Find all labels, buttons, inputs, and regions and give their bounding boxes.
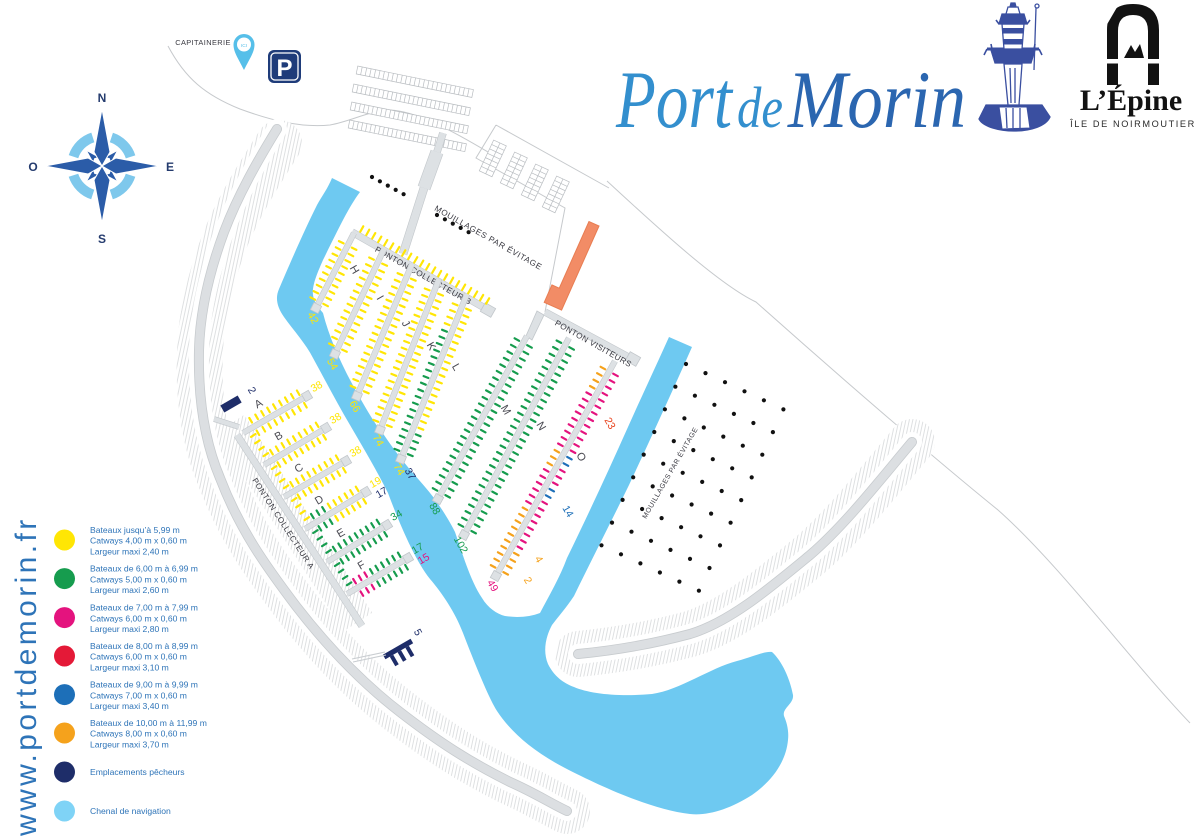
svg-text:Bateaux de 9,00 m à 9,99 m: Bateaux de 9,00 m à 9,99 m <box>90 680 198 690</box>
svg-text:Catways 6,00 m x 0,60 m: Catways 6,00 m x 0,60 m <box>90 613 187 623</box>
svg-text:O: O <box>28 160 37 174</box>
svg-text:Catways 7,00 m x 0,60 m: Catways 7,00 m x 0,60 m <box>90 690 187 700</box>
svg-text:Bateaux de 10,00 m à 11,99 m: Bateaux de 10,00 m à 11,99 m <box>90 718 207 728</box>
svg-text:CAPITAINERIE: CAPITAINERIE <box>175 38 231 47</box>
svg-text:ÎLE DE NOIRMOUTIER: ÎLE DE NOIRMOUTIER <box>1069 119 1196 129</box>
svg-text:L’Épine: L’Épine <box>1080 84 1182 117</box>
svg-text:Bateaux jusqu’à 5,99 m: Bateaux jusqu’à 5,99 m <box>90 525 180 535</box>
svg-text:E: E <box>166 160 174 174</box>
svg-text:Catways 5,00 m x 0,60 m: Catways 5,00 m x 0,60 m <box>90 574 187 584</box>
svg-text:Emplacements pêcheurs: Emplacements pêcheurs <box>90 767 185 777</box>
svg-text:N: N <box>98 91 107 105</box>
svg-text:www.portdemorin.fr: www.portdemorin.fr <box>10 516 43 837</box>
svg-text:Chenal de navigation: Chenal de navigation <box>90 806 171 816</box>
svg-text:Catways 6,00 m x 0,60 m: Catways 6,00 m x 0,60 m <box>90 652 187 662</box>
svg-text:Largeur maxi 2,80 m: Largeur maxi 2,80 m <box>90 624 169 634</box>
svg-text:S: S <box>98 232 106 246</box>
svg-text:Largeur maxi 2,60 m: Largeur maxi 2,60 m <box>90 585 169 595</box>
svg-text:Port: Port <box>615 54 734 145</box>
svg-text:Bateaux de 8,00 m à 8,99 m: Bateaux de 8,00 m à 8,99 m <box>90 641 198 651</box>
svg-text:Bateaux de 6,00 m à 6,99 m: Bateaux de 6,00 m à 6,99 m <box>90 564 198 574</box>
svg-text:ICI: ICI <box>241 43 247 49</box>
svg-text:Largeur maxi 2,40 m: Largeur maxi 2,40 m <box>90 546 169 556</box>
svg-text:Morin: Morin <box>787 54 966 145</box>
svg-text:Largeur maxi 3,10 m: Largeur maxi 3,10 m <box>90 662 169 672</box>
svg-text:Bateaux de 7,00 m à 7,99 m: Bateaux de 7,00 m à 7,99 m <box>90 603 198 613</box>
svg-text:de: de <box>737 75 783 140</box>
svg-text:Largeur maxi 3,70 m: Largeur maxi 3,70 m <box>90 739 169 749</box>
svg-text:Largeur maxi 3,40 m: Largeur maxi 3,40 m <box>90 701 169 711</box>
svg-text:Catways 8,00 m x 0,60 m: Catways 8,00 m x 0,60 m <box>90 729 187 739</box>
svg-text:P: P <box>276 55 292 82</box>
svg-text:Catways 4,00 m x 0,60 m: Catways 4,00 m x 0,60 m <box>90 536 187 546</box>
